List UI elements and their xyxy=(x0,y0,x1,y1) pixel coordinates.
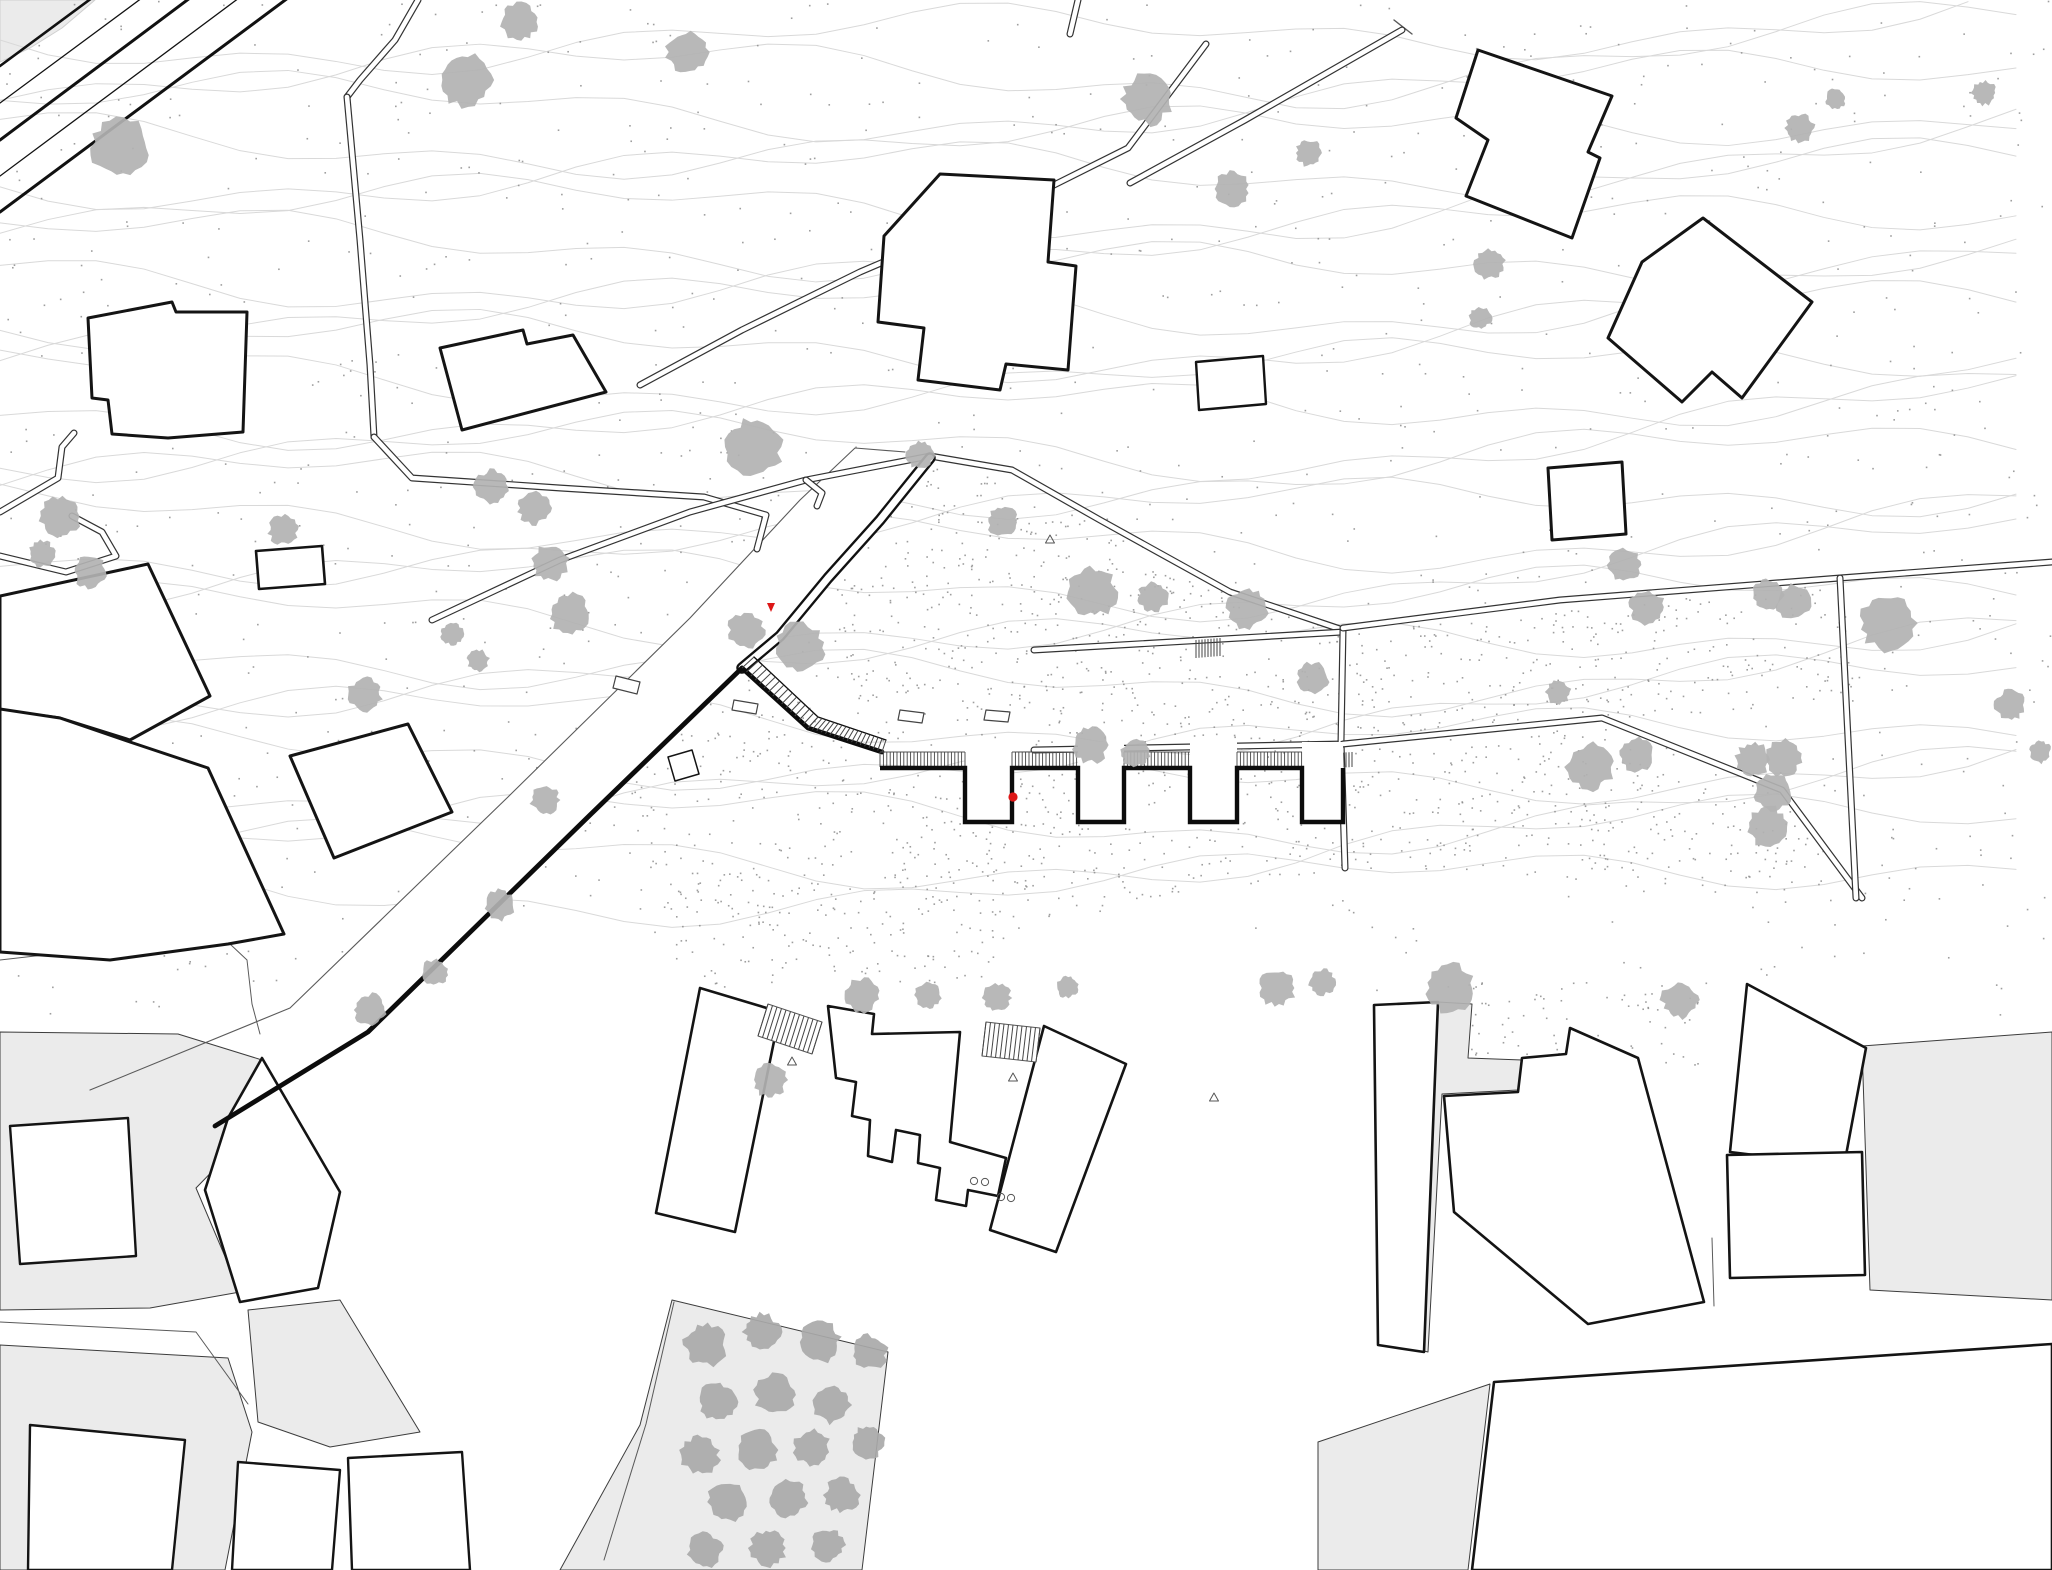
layer-stipple xyxy=(3,1,2051,1085)
site-plan-map xyxy=(0,0,2052,1570)
site-plan xyxy=(0,0,2052,1570)
red-dot-marker xyxy=(1008,792,1017,801)
layer-railway xyxy=(0,0,296,212)
